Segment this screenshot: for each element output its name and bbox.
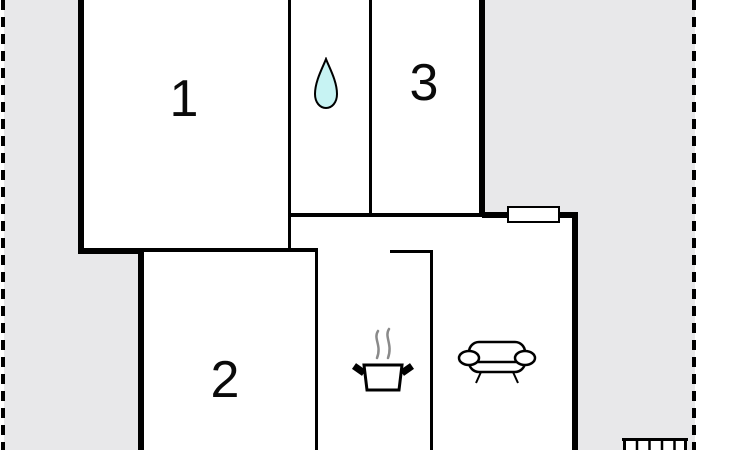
wall-bathroom-room3: [369, 0, 372, 216]
floor-plan: 1 2 3: [0, 0, 730, 450]
wall-kitchen-top: [390, 250, 433, 253]
room-1-label: 1: [170, 73, 199, 125]
water-drop-icon: [312, 57, 340, 110]
hall-kitchen-living-floor: [288, 212, 578, 450]
stairs-icon: [622, 436, 688, 450]
wall-outer-right: [572, 212, 578, 450]
wall-outer-left-top: [78, 0, 84, 254]
wall-room2-right: [315, 250, 318, 450]
sofa-icon: [456, 336, 538, 386]
window-symbol: [507, 206, 560, 223]
wall-outer-top-right-a: [482, 212, 509, 218]
boundary-dashed-left: [1, 0, 5, 450]
wall-outer-step: [78, 248, 144, 254]
wall-hall-top: [288, 213, 482, 217]
boundary-dashed-right: [692, 0, 696, 450]
cooking-pot-icon: [351, 325, 415, 393]
wall-outer-left-bottom: [138, 248, 144, 450]
wall-room1-room2: [144, 248, 318, 252]
wall-outer-room3-right: [479, 0, 485, 217]
room-3-label: 3: [410, 57, 439, 109]
room-2-label: 2: [211, 354, 240, 406]
wall-kitchen-right: [430, 250, 433, 450]
